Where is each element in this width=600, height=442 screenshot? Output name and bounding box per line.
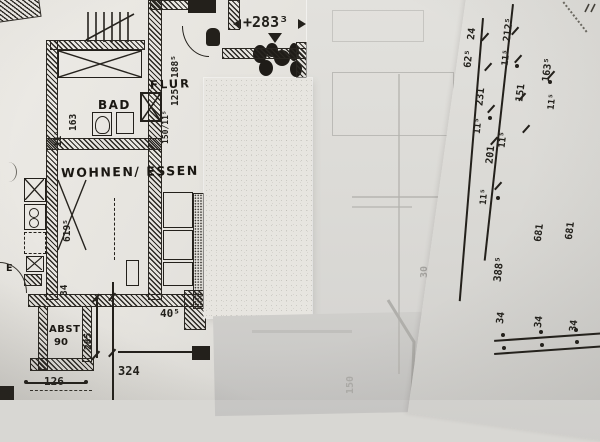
dim-node xyxy=(548,80,552,84)
wall-abst-bottom xyxy=(30,358,94,371)
pen-squiggle xyxy=(0,162,17,182)
wall-left-vertical xyxy=(46,40,58,300)
dim-163: 163 xyxy=(69,101,79,131)
sink-circle-2 xyxy=(29,218,39,228)
dim-node xyxy=(539,330,543,334)
dimline-353 xyxy=(118,351,196,353)
crossed-box-shaft xyxy=(58,50,142,78)
dim-619-5: 619⁵ xyxy=(63,202,73,242)
sink-circle-1 xyxy=(29,208,39,218)
wall-top-small xyxy=(150,0,190,10)
corner-marks xyxy=(584,3,596,13)
ghost-horizontal-line-1 xyxy=(352,196,440,198)
door-arc-bottom-left xyxy=(0,262,27,293)
room-label-bad: BAD xyxy=(98,99,131,111)
kitchen-crossed-unit xyxy=(24,178,46,202)
kitchen-crossed-unit-small xyxy=(26,256,44,272)
dim-125: 125 xyxy=(171,80,181,106)
wall-block-end xyxy=(192,346,210,360)
ghost-horizontal-line-2 xyxy=(352,206,412,208)
ghost-line-bottom xyxy=(252,330,352,333)
dim-node xyxy=(24,380,28,384)
dim-node xyxy=(574,328,578,332)
wall-corridor-vertical xyxy=(148,0,162,300)
balcony-rect-3 xyxy=(163,262,193,286)
stairs-symbol xyxy=(84,10,136,44)
photo-corner-shadow xyxy=(0,386,14,400)
dimline-126 xyxy=(26,382,86,384)
hatch-small-block xyxy=(24,274,42,286)
dim-node xyxy=(496,196,500,200)
wc-fixture xyxy=(206,28,220,46)
chain-a-24: 24 xyxy=(467,20,479,41)
ghost-dim-150: 150 xyxy=(346,362,356,394)
wall-top-horizontal xyxy=(50,40,145,50)
dim-node xyxy=(501,333,505,337)
dim-window-150-115: 150/11⁵ xyxy=(162,98,170,144)
whiteout-patch xyxy=(204,78,312,318)
wall-pillar-hatch xyxy=(184,290,206,330)
elevation-arrow-right-icon xyxy=(298,19,306,29)
dim-node xyxy=(515,64,519,68)
balcony-rect-1 xyxy=(163,192,193,228)
dim-node xyxy=(84,380,88,384)
wall-block-top xyxy=(188,0,216,13)
room-label-abst: ABST xyxy=(49,325,80,335)
ghost-rect-top xyxy=(332,10,424,42)
kitchen-dashed-unit xyxy=(24,232,46,254)
dim-115-wall: 11⁵ xyxy=(55,124,64,146)
wall-bottom-living xyxy=(28,294,208,307)
dimline-285 xyxy=(96,296,98,358)
ghost-rect-mid xyxy=(332,72,454,136)
washbasin-bowl xyxy=(95,116,110,134)
dashes-below-abst xyxy=(30,390,92,391)
bench-rect xyxy=(126,260,139,286)
dim-324: 324 xyxy=(118,365,140,377)
toilet-fixture xyxy=(116,112,134,134)
dimline-324-vertical xyxy=(112,282,114,400)
dashed-line-living xyxy=(114,198,115,260)
label-abst-90: 90 xyxy=(54,338,68,348)
wall-corridor-right xyxy=(228,0,240,30)
crossed-box-bad-shaft xyxy=(140,92,162,122)
dim-188-5: 188⁵ xyxy=(171,40,181,78)
dim-285: 285 xyxy=(84,310,94,350)
door-arc-flur xyxy=(182,26,209,57)
dim-34-wall: 34 xyxy=(60,278,70,296)
dim-node xyxy=(540,343,544,347)
elevation-label: +283³ xyxy=(243,15,288,30)
wall-corner-hatch xyxy=(0,0,42,23)
balcony-rect-2 xyxy=(163,230,193,260)
dim-node xyxy=(575,340,579,344)
dim-40-5: 40⁵ xyxy=(160,308,180,319)
wall-right-plant xyxy=(296,42,307,78)
dim-node xyxy=(502,346,506,350)
dim-node xyxy=(488,116,492,120)
photo-of-floorplan-sheets: +283³ FLUR 188⁵ 125 BAD 163 150/11⁵ 11⁵ … xyxy=(0,0,600,400)
